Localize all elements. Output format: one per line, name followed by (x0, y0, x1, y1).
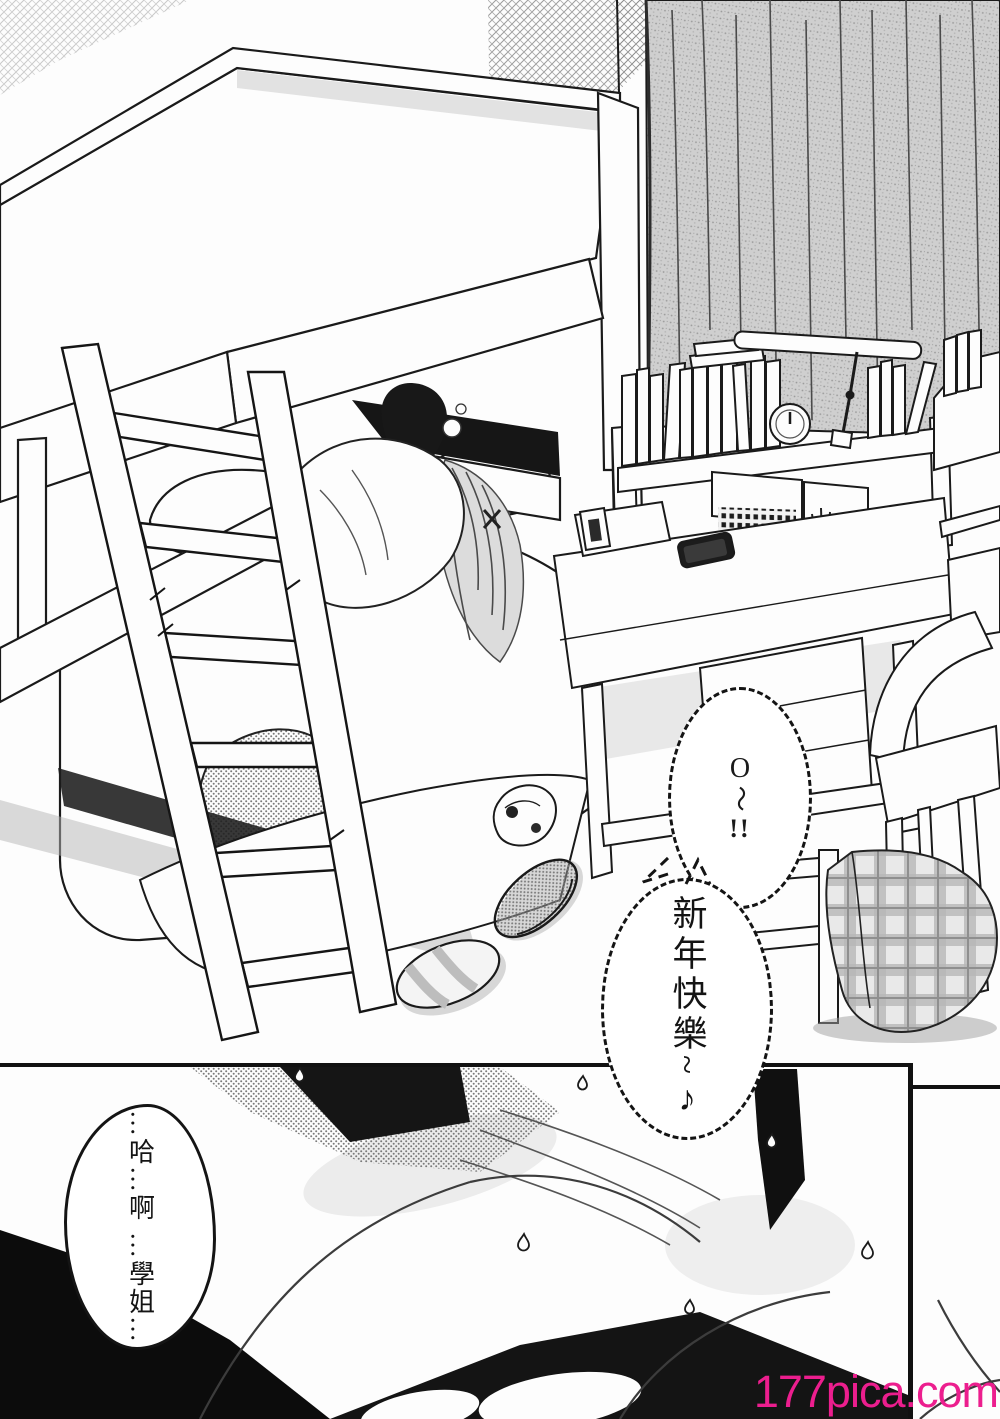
bubble-exclaim-wave: 〜 (726, 786, 753, 812)
panel-border-horizontal (0, 1063, 912, 1067)
alarm-clock (770, 404, 810, 444)
new-year-text: 新年快樂~♪ (662, 895, 713, 1123)
speech-bubble-exclaim: O 〜 !! (668, 687, 812, 909)
bubble-exclaim-char: O (730, 754, 750, 783)
speech-bubble-moan: …哈…啊 …學姐… (64, 1104, 216, 1350)
moan-column-left: …學姐… (122, 1232, 159, 1344)
sparkle-bubble (443, 419, 461, 437)
ladder-rung (191, 743, 319, 767)
moan-text: …哈…啊 …學姐… (122, 1110, 159, 1344)
watermark: 177pica.com (754, 1369, 998, 1414)
bubble-exclaim-bang: !! (729, 815, 750, 842)
top-panel-illustration (0, 0, 1000, 1065)
manga-page: O 〜 !! 新年快樂~♪ …哈…啊 …學姐… 177pica.com (0, 0, 1000, 1419)
sparkle-bubble (456, 404, 466, 414)
panel-border-horizontal-right (913, 1085, 1000, 1089)
moan-column-right: …哈…啊 (122, 1110, 159, 1222)
speech-bubble-new-year: 新年快樂~♪ (601, 878, 773, 1140)
